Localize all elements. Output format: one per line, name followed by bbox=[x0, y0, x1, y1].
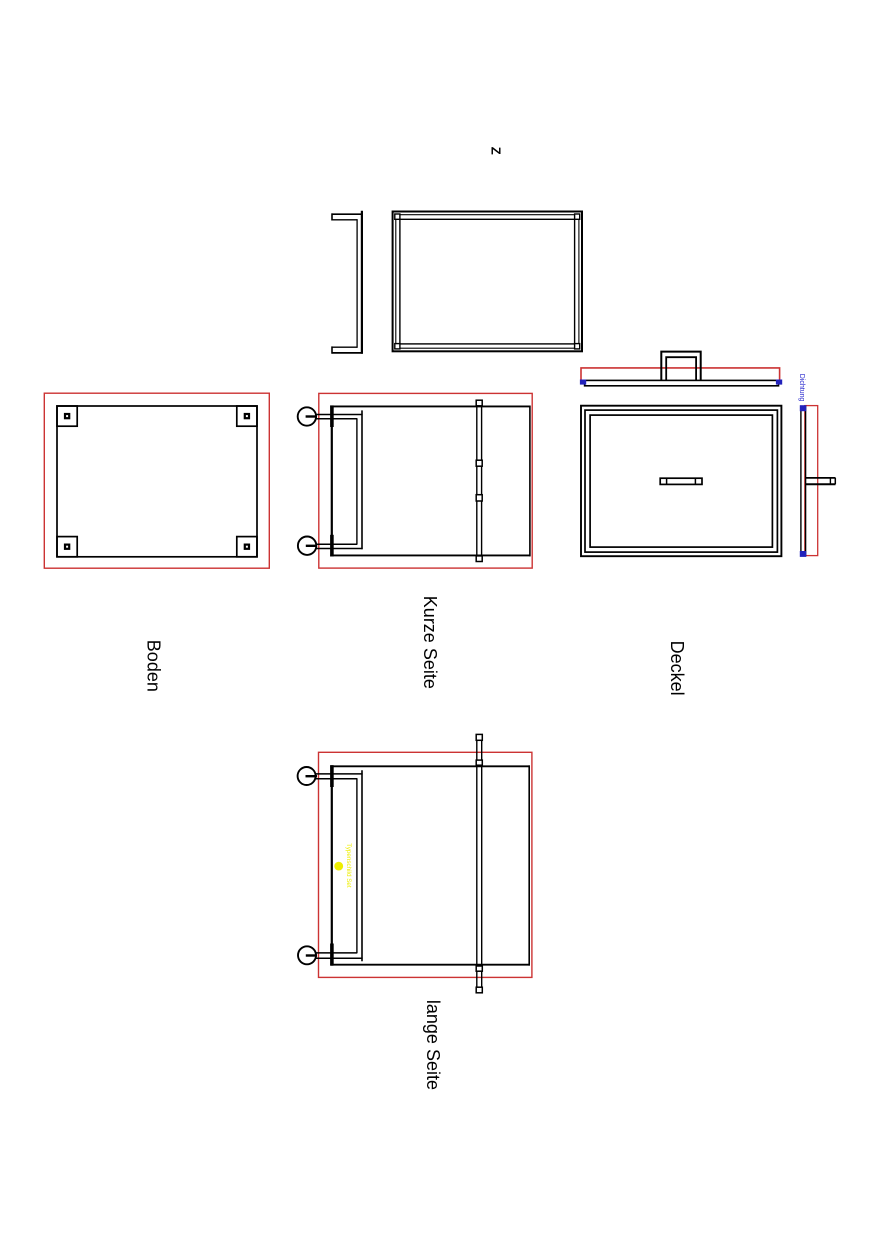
svg-text:Z: Z bbox=[489, 147, 504, 155]
svg-text:Dichtung: Dichtung bbox=[798, 374, 805, 402]
svg-text:Deckel: Deckel bbox=[667, 641, 687, 696]
svg-text:Boden: Boden bbox=[144, 640, 164, 692]
svg-text:Kurze Seite: Kurze Seite bbox=[420, 596, 440, 689]
svg-text:lange Seite: lange Seite bbox=[423, 1000, 443, 1090]
svg-text:Typenschild Set: Typenschild Set bbox=[345, 843, 352, 888]
